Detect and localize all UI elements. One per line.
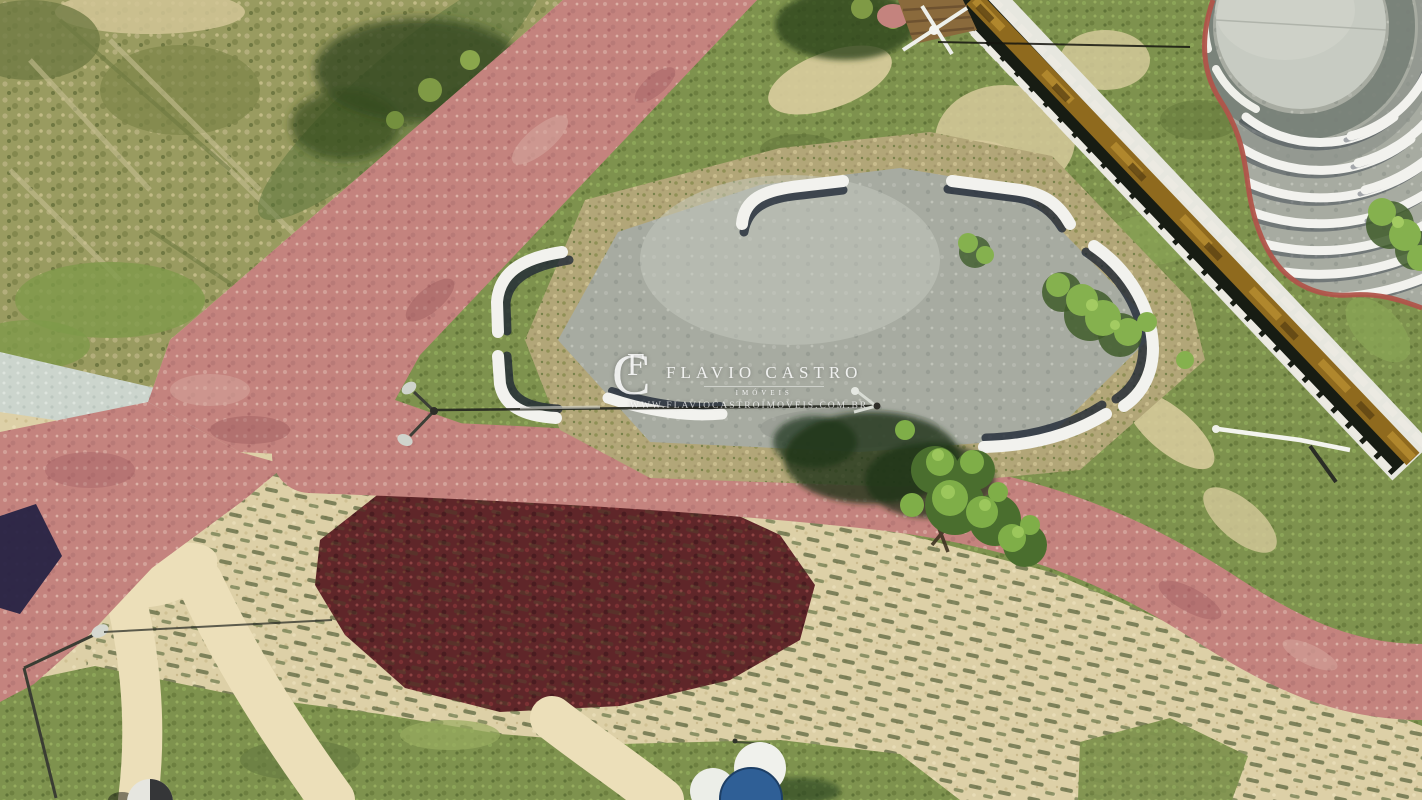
bright-grass-patch: [400, 720, 500, 750]
lamp-head: [929, 25, 939, 35]
lamp-mast: [430, 407, 438, 415]
sand-footpath: [122, 582, 142, 800]
tree-foliage: [460, 50, 480, 70]
tree-foliage: [386, 111, 404, 129]
lamp-mast: [874, 403, 881, 410]
dark-scrub-patch: [100, 45, 260, 135]
lamp-head: [851, 387, 859, 395]
tree-foliage: [418, 78, 442, 102]
boom-highlight: [520, 407, 600, 408]
aerial-photo-canvas: [0, 0, 1422, 800]
aerial-park-photo: C F FLAVIO CASTRO IMÓVEIS WWW.FLAVIOCAST…: [0, 0, 1422, 800]
lamp-head: [1212, 425, 1220, 433]
